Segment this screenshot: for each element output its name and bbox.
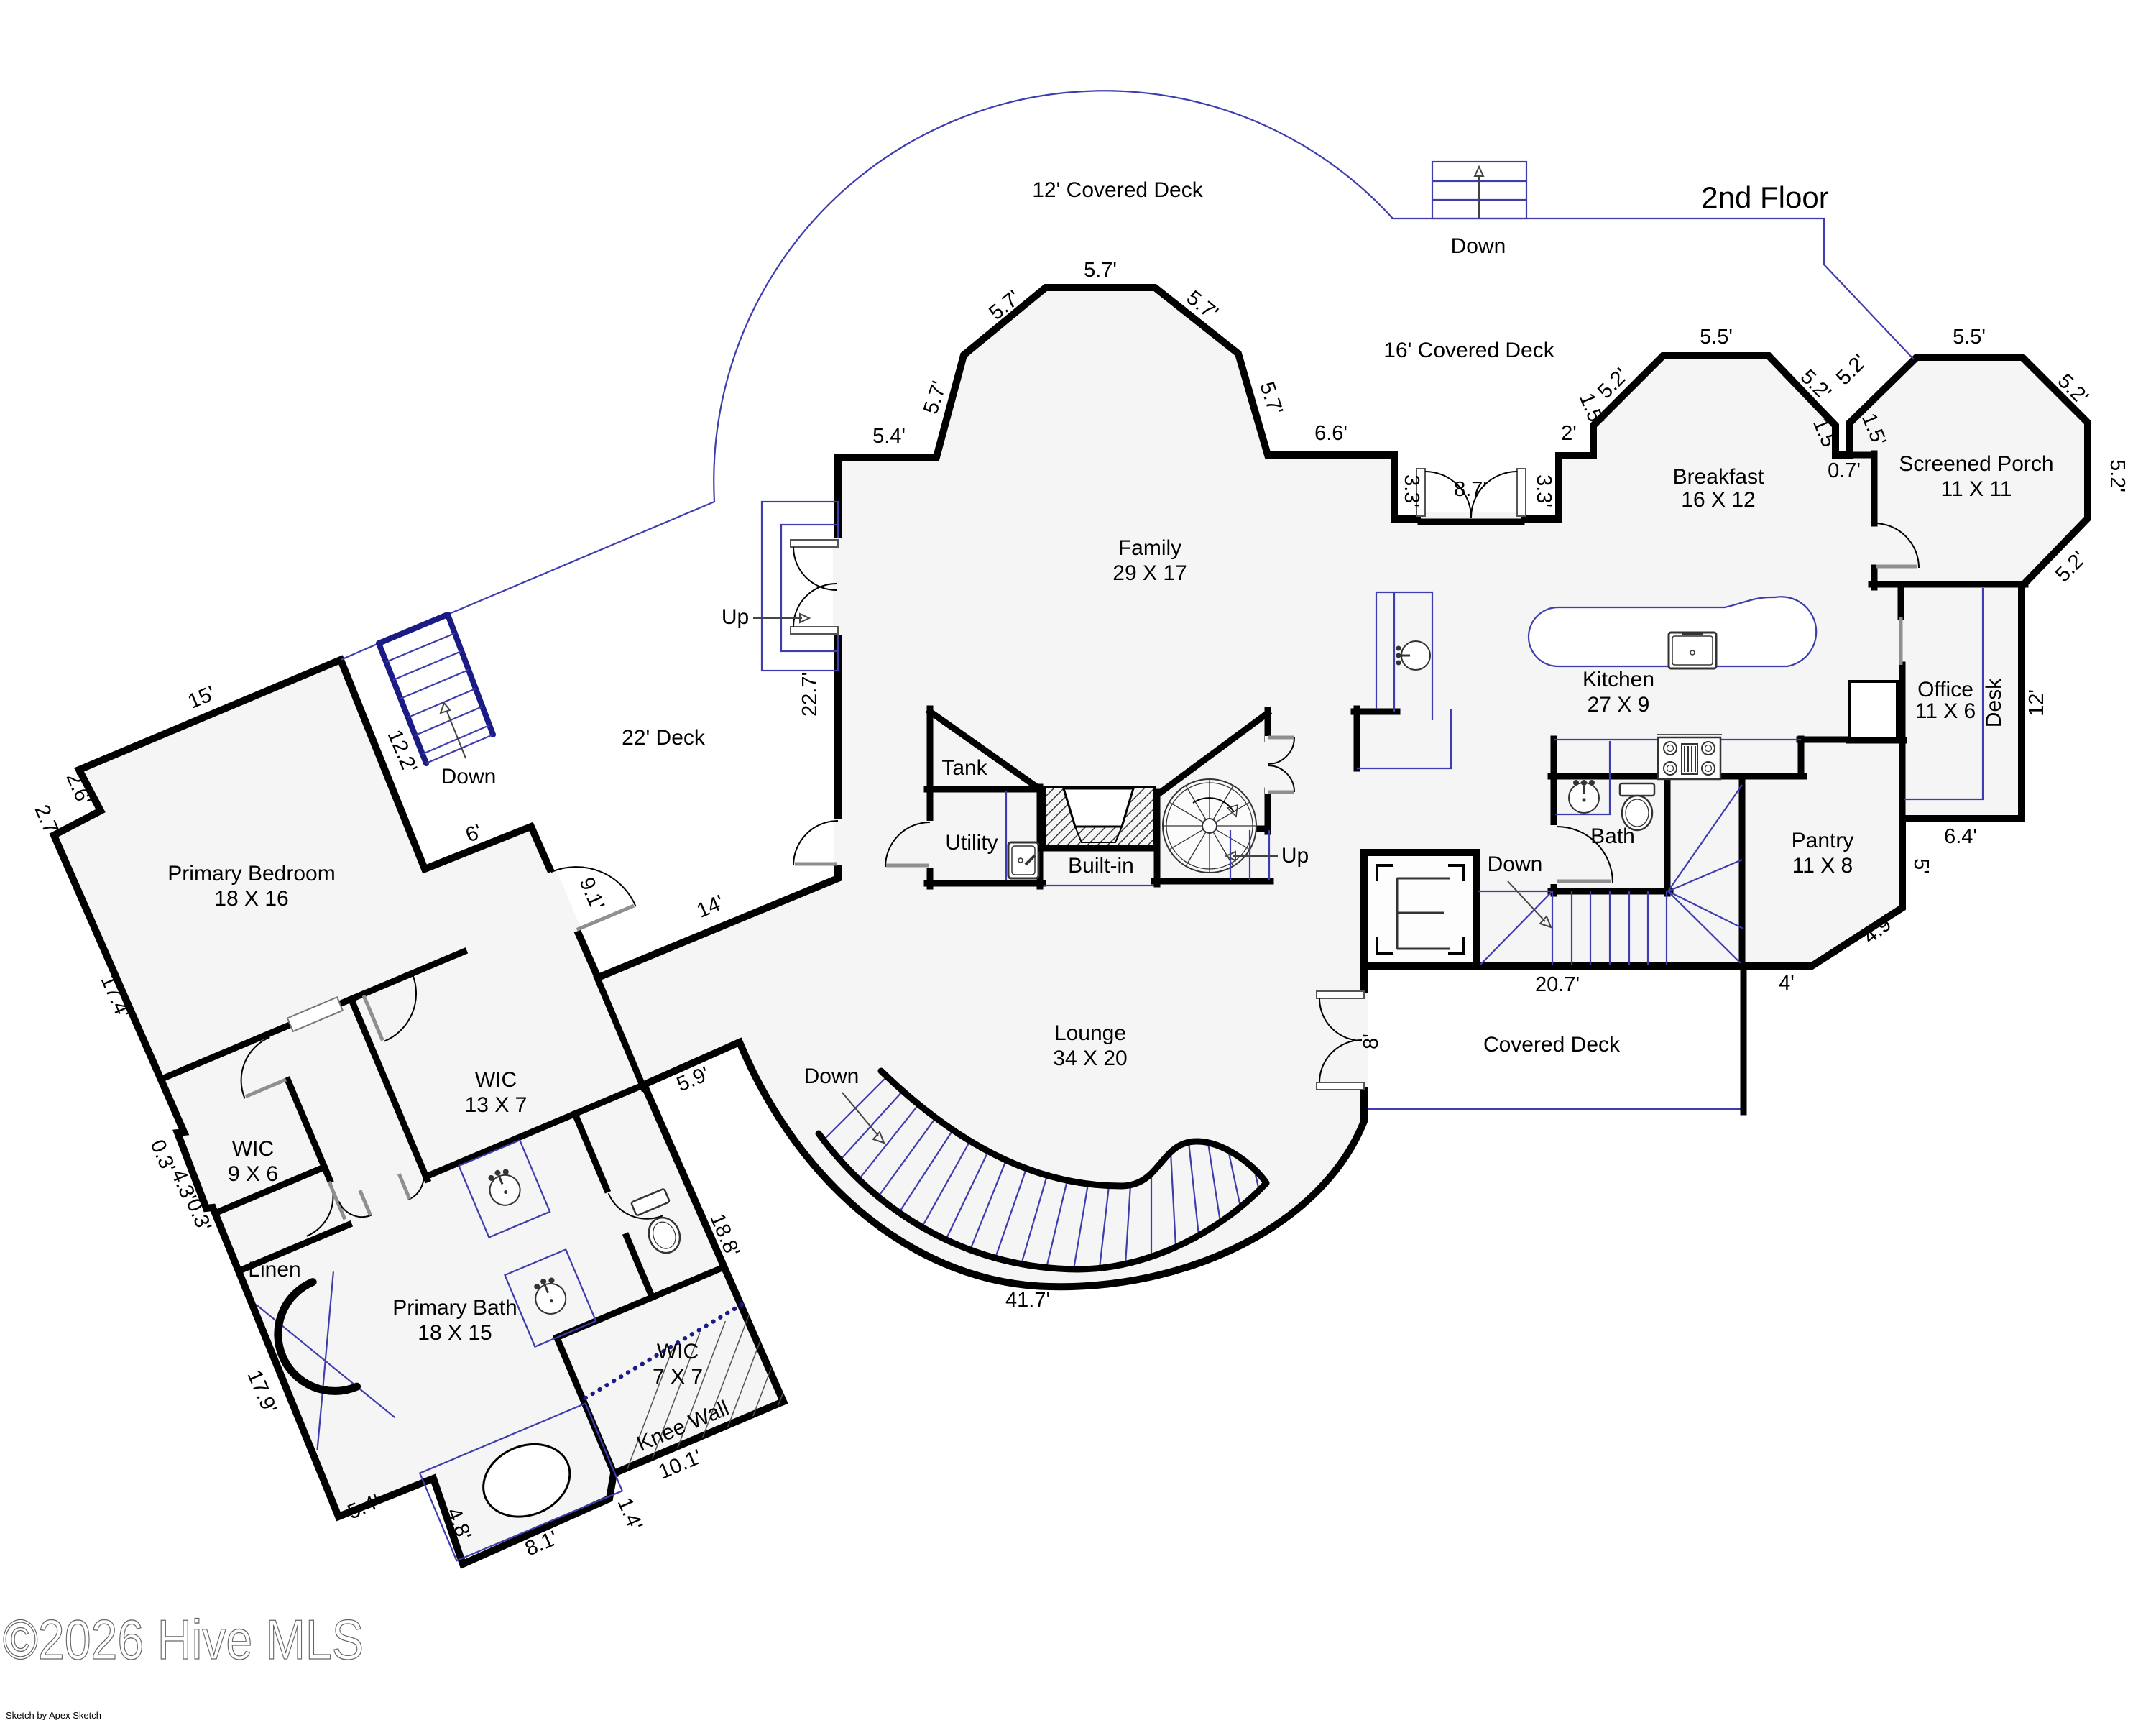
- svg-text:5.7': 5.7': [1084, 259, 1117, 282]
- svg-text:Down: Down: [1451, 234, 1506, 258]
- svg-text:5.2': 5.2': [2106, 459, 2129, 492]
- svg-text:11 X 8: 11 X 8: [1792, 854, 1853, 878]
- svg-text:Lounge: Lounge: [1054, 1021, 1126, 1045]
- svg-text:3.3': 3.3': [1532, 474, 1555, 507]
- svg-text:0.7': 0.7': [1828, 459, 1861, 482]
- svg-text:7 X 7: 7 X 7: [653, 1365, 703, 1389]
- svg-text:WIC: WIC: [657, 1340, 699, 1363]
- svg-text:22.7': 22.7': [798, 672, 821, 717]
- svg-text:16' Covered Deck: 16' Covered Deck: [1383, 339, 1555, 362]
- svg-text:Utility: Utility: [945, 831, 998, 855]
- svg-text:Kitchen: Kitchen: [1583, 668, 1654, 691]
- svg-text:11 X 6: 11 X 6: [1915, 699, 1976, 723]
- svg-text:16 X 12: 16 X 12: [1681, 488, 1755, 512]
- svg-text:22' Deck: 22' Deck: [622, 726, 706, 750]
- svg-text:12' Covered Deck: 12' Covered Deck: [1032, 178, 1204, 202]
- svg-text:6.6': 6.6': [1314, 422, 1347, 445]
- svg-text:Family: Family: [1118, 536, 1181, 560]
- svg-text:5.5': 5.5': [1700, 326, 1733, 349]
- svg-text:Built-in: Built-in: [1068, 854, 1134, 878]
- svg-text:18 X 15: 18 X 15: [418, 1321, 492, 1345]
- svg-text:27 X 9: 27 X 9: [1588, 693, 1650, 717]
- svg-text:Sketch by Apex Sketch: Sketch by Apex Sketch: [6, 1710, 101, 1720]
- svg-text:9 X 6: 9 X 6: [228, 1162, 278, 1186]
- svg-text:Linen: Linen: [248, 1258, 300, 1282]
- svg-text:©2026 Hive MLS: ©2026 Hive MLS: [3, 1608, 364, 1671]
- svg-text:Pantry: Pantry: [1792, 829, 1854, 852]
- svg-text:Desk: Desk: [1982, 678, 2006, 727]
- svg-text:8': 8': [1360, 1034, 1383, 1049]
- svg-text:Up: Up: [722, 605, 749, 629]
- svg-text:5.4': 5.4': [872, 425, 906, 448]
- svg-text:Bath: Bath: [1590, 824, 1635, 848]
- svg-text:2': 2': [1561, 422, 1577, 445]
- svg-text:Primary Bedroom: Primary Bedroom: [167, 862, 335, 886]
- svg-text:Up: Up: [1281, 844, 1309, 868]
- svg-text:6.4': 6.4': [1944, 825, 1977, 848]
- svg-text:5': 5': [1909, 858, 1932, 874]
- svg-text:2nd Floor: 2nd Floor: [1701, 180, 1828, 214]
- svg-text:4': 4': [1779, 972, 1795, 995]
- svg-text:Screened Porch: Screened Porch: [1899, 452, 2053, 476]
- svg-text:WIC: WIC: [475, 1068, 517, 1092]
- svg-text:20.7': 20.7': [1535, 973, 1580, 996]
- svg-text:Down: Down: [441, 765, 497, 788]
- svg-text:13 X 7: 13 X 7: [465, 1093, 528, 1117]
- svg-text:34 X 20: 34 X 20: [1053, 1047, 1127, 1070]
- svg-text:Covered Deck: Covered Deck: [1483, 1033, 1621, 1057]
- svg-text:Breakfast: Breakfast: [1673, 465, 1764, 489]
- svg-text:8.7': 8.7': [1454, 478, 1487, 501]
- svg-text:Office: Office: [1917, 678, 1973, 702]
- svg-text:Down: Down: [804, 1064, 860, 1088]
- svg-text:3.3': 3.3': [1400, 474, 1423, 507]
- svg-text:18 X 16: 18 X 16: [214, 887, 288, 911]
- svg-text:WIC: WIC: [232, 1137, 274, 1161]
- svg-text:Tank: Tank: [941, 756, 987, 780]
- svg-text:5.5': 5.5': [1953, 326, 1986, 349]
- svg-text:Primary Bath: Primary Bath: [392, 1296, 517, 1320]
- svg-text:Down: Down: [1488, 852, 1543, 876]
- svg-text:41.7': 41.7': [1005, 1289, 1050, 1312]
- svg-text:29 X 17: 29 X 17: [1112, 561, 1187, 585]
- svg-text:11 X 11: 11 X 11: [1941, 477, 2012, 501]
- svg-text:12': 12': [2025, 689, 2048, 717]
